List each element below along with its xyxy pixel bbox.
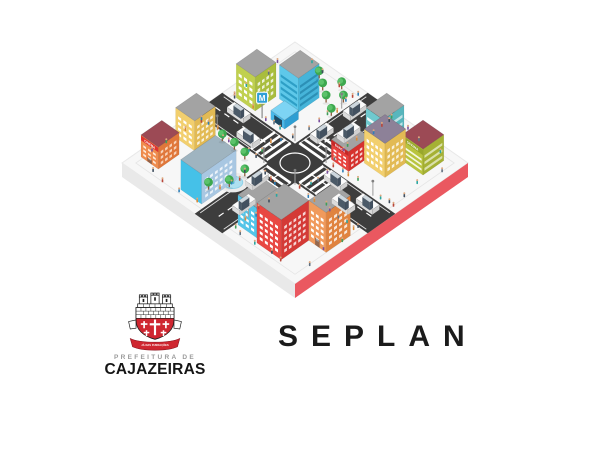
pedestrian xyxy=(334,155,336,160)
pedestrian xyxy=(268,70,270,75)
pedestrian xyxy=(326,169,328,174)
pedestrian xyxy=(252,104,254,109)
pedestrian xyxy=(441,167,443,172)
pedestrian xyxy=(208,120,210,125)
pedestrian xyxy=(373,129,375,134)
pedestrian xyxy=(381,122,383,127)
pedestrian xyxy=(309,261,311,266)
pedestrian xyxy=(388,117,390,122)
pedestrian xyxy=(338,82,340,87)
pedestrian xyxy=(244,168,246,173)
pedestrian xyxy=(347,142,349,147)
pedestrian xyxy=(279,125,281,130)
pedestrian xyxy=(219,185,221,190)
coat-of-arms-icon: JÁ NAS FUNDAÇÕES xyxy=(122,291,188,353)
pedestrian xyxy=(178,187,180,192)
page: CINEMABANCOOFICINAM xyxy=(0,0,600,450)
pedestrian xyxy=(277,58,279,63)
pedestrian xyxy=(353,225,355,230)
pedestrian xyxy=(318,117,320,122)
pedestrian xyxy=(222,134,224,139)
pedestrian xyxy=(346,218,348,223)
pedestrian xyxy=(403,192,405,197)
pedestrian xyxy=(327,110,329,115)
pedestrian xyxy=(255,153,257,158)
pedestrian xyxy=(270,138,272,143)
pedestrian xyxy=(418,136,420,141)
pedestrian xyxy=(217,125,219,130)
city-name-label: CAJAZEIRAS xyxy=(88,361,222,379)
pedestrian xyxy=(245,216,247,221)
pedestrian xyxy=(310,180,312,185)
pedestrian xyxy=(317,177,319,182)
pedestrian xyxy=(276,192,278,197)
pedestrian xyxy=(357,91,359,96)
pedestrian xyxy=(264,170,266,175)
pedestrian xyxy=(245,82,247,87)
pedestrian xyxy=(313,197,315,202)
pedestrian xyxy=(234,94,236,99)
city-illustration: CINEMABANCOOFICINAM xyxy=(0,0,600,312)
metro-sign-letter: M xyxy=(259,94,266,103)
pedestrian xyxy=(248,147,250,152)
crest-brick-band xyxy=(136,308,174,319)
pedestrian xyxy=(325,201,327,206)
cajazeiras-logo: JÁ NAS FUNDAÇÕES PREFEITURA DE CAJAZEIRA… xyxy=(88,291,222,379)
pedestrian xyxy=(299,184,301,189)
pedestrian xyxy=(258,204,260,209)
pedestrian xyxy=(308,125,310,130)
pedestrian xyxy=(201,115,203,120)
pedestrian xyxy=(323,245,325,250)
pedestrian xyxy=(196,198,198,203)
pedestrian xyxy=(254,240,256,245)
pedestrian xyxy=(342,168,344,173)
pedestrian xyxy=(271,249,273,254)
pedestrian xyxy=(332,162,334,167)
pedestrian xyxy=(439,148,441,153)
pedestrian xyxy=(255,212,257,217)
pedestrian xyxy=(239,230,241,235)
pedestrian xyxy=(341,237,343,242)
pedestrian xyxy=(393,202,395,207)
pedestrian xyxy=(356,136,358,141)
pedestrian xyxy=(357,223,359,228)
pedestrian xyxy=(274,180,276,185)
pedestrian xyxy=(337,214,339,219)
pedestrian xyxy=(380,195,382,200)
pedestrian xyxy=(388,198,390,203)
pedestrian xyxy=(407,125,409,130)
pedestrian xyxy=(357,176,359,181)
pedestrian xyxy=(343,146,345,151)
pedestrian xyxy=(273,120,275,125)
pedestrian xyxy=(280,136,282,141)
pedestrian xyxy=(416,179,418,184)
pedestrian xyxy=(270,176,272,181)
pedestrian xyxy=(311,58,313,63)
pedestrian xyxy=(239,176,241,181)
pedestrian xyxy=(329,207,331,212)
pedestrian xyxy=(352,93,354,98)
prefeitura-label: PREFEITURA DE xyxy=(88,354,222,361)
pedestrian xyxy=(235,224,237,229)
pedestrian xyxy=(152,167,154,172)
pedestrian xyxy=(391,114,393,119)
pedestrian xyxy=(345,97,347,102)
pedestrian xyxy=(231,180,233,185)
pedestrian xyxy=(261,147,263,152)
pedestrian xyxy=(280,257,282,262)
pedestrian xyxy=(162,177,164,182)
pedestrian xyxy=(322,68,324,73)
pedestrian xyxy=(184,126,186,131)
pedestrian xyxy=(307,193,309,198)
seplan-wordmark: SEPLAN xyxy=(278,320,478,354)
pedestrian xyxy=(347,171,349,176)
pedestrian xyxy=(165,138,167,143)
pedestrian xyxy=(268,198,270,203)
pedestrian xyxy=(336,108,338,113)
pedestrian xyxy=(151,147,153,152)
pedestrian xyxy=(265,116,267,121)
pedestrian xyxy=(228,137,230,142)
pedestrian xyxy=(292,133,294,138)
